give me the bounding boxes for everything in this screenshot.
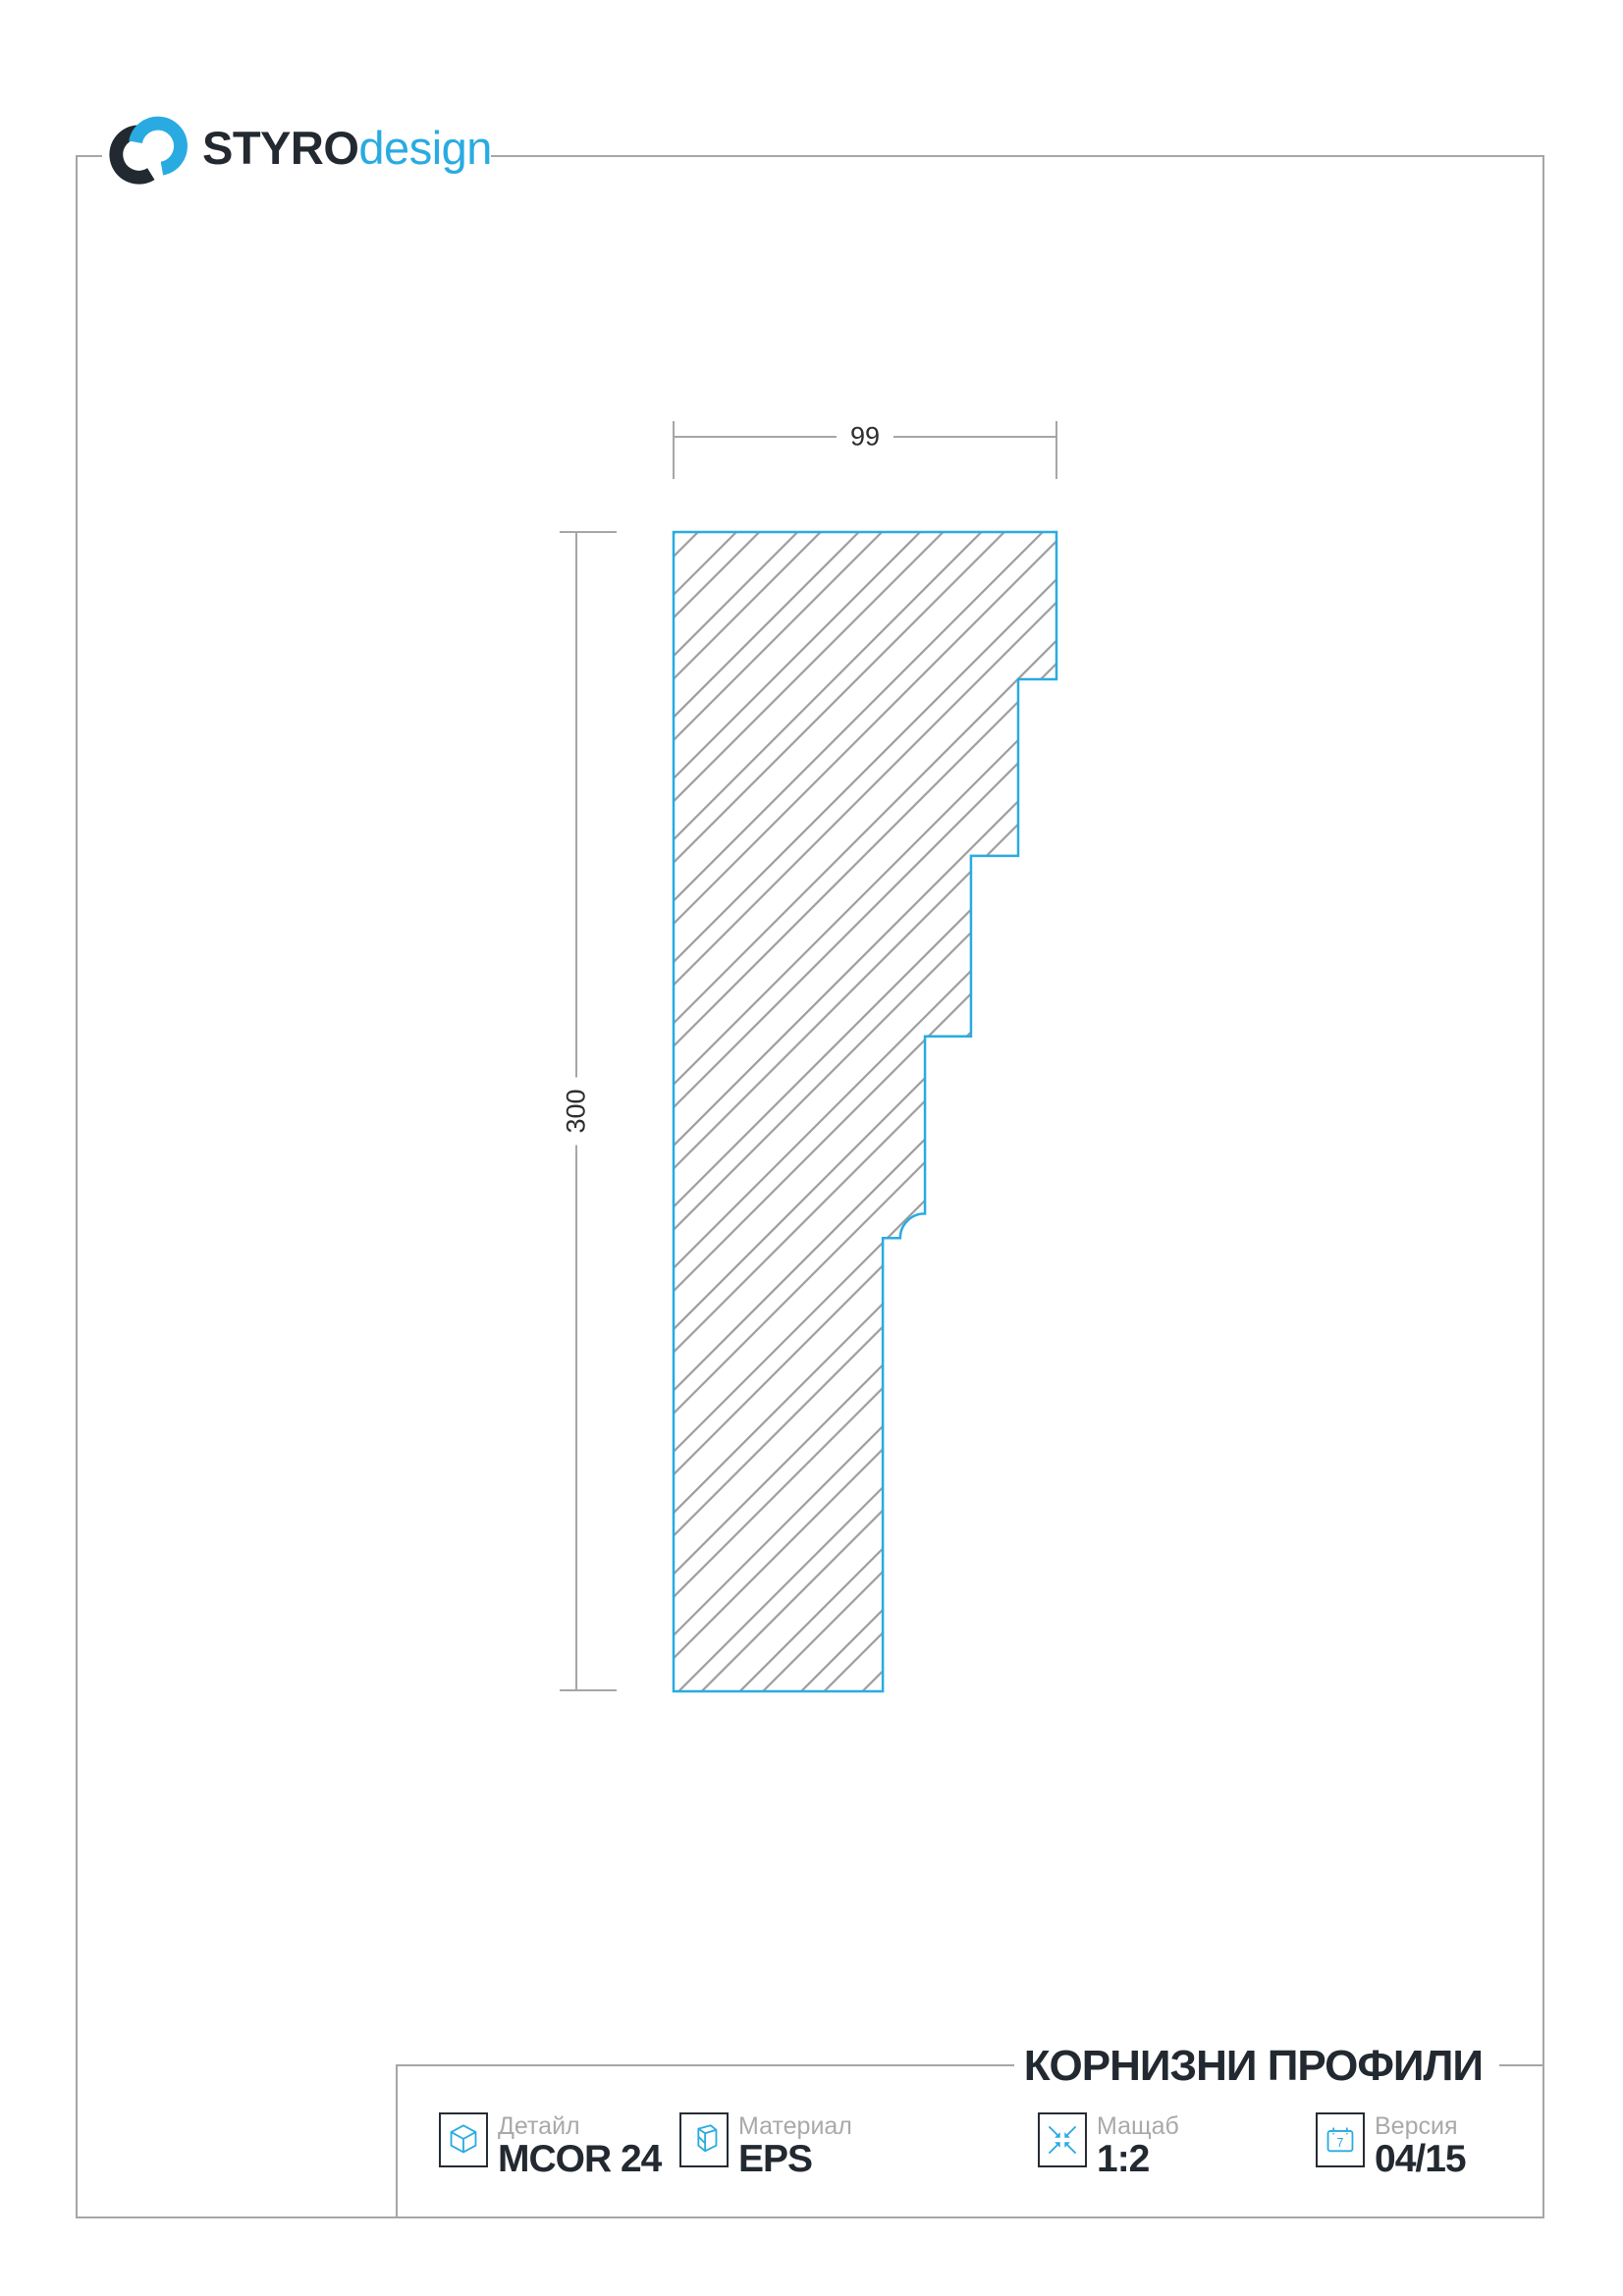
field-label: Материал <box>738 2112 852 2141</box>
dimension-tick-bottom <box>560 1689 617 1691</box>
frame-bottom-border <box>76 2216 1544 2218</box>
field-scale: Мащаб 1:2 <box>1038 2112 1273 2171</box>
field-label: Детайл <box>498 2112 580 2141</box>
field-value: MCOR 24 <box>498 2138 661 2181</box>
field-version: 7 Версия 04/15 <box>1316 2112 1551 2171</box>
brand-name-light: design <box>358 121 492 175</box>
width-dimension-label: 99 <box>837 422 893 453</box>
field-value: 04/15 <box>1375 2138 1466 2181</box>
titleblock-top-right-segment <box>1499 2064 1544 2066</box>
calendar-day-glyph: 7 <box>1337 2136 1344 2150</box>
dimension-tick-right <box>1055 421 1057 479</box>
dimension-tick-left <box>673 421 675 479</box>
profile-outline <box>674 532 1056 1691</box>
field-label: Мащаб <box>1097 2112 1179 2141</box>
field-value: EPS <box>738 2138 812 2181</box>
cube-icon <box>447 2123 480 2157</box>
scale-arrows-icon <box>1046 2123 1079 2157</box>
frame-top-left-segment <box>76 155 102 157</box>
field-material: Материал EPS <box>679 2112 915 2171</box>
scale-icon-box <box>1038 2112 1087 2167</box>
field-value: 1:2 <box>1097 2138 1149 2181</box>
brand-name-bold: STYRO <box>202 121 358 175</box>
profile-cross-section <box>674 532 1056 1691</box>
field-detail: Детайл MCOR 24 <box>439 2112 675 2171</box>
titleblock-top-left-segment <box>396 2064 1095 2066</box>
detail-icon-box <box>439 2112 488 2167</box>
material-icon-box <box>679 2112 729 2167</box>
dimension-tick-top <box>560 531 617 533</box>
version-icon-box: 7 <box>1316 2112 1365 2167</box>
field-label: Версия <box>1375 2112 1458 2141</box>
frame-left-border <box>76 155 78 2218</box>
height-dimension-label: 300 <box>562 1077 592 1145</box>
frame-top-right-segment <box>491 155 1544 157</box>
section-title: КОРНИЗНИ ПРОФИЛИ <box>1014 2042 1492 2091</box>
calendar-icon: 7 <box>1324 2123 1357 2157</box>
swirl-s-icon <box>106 114 190 188</box>
brand-text: STYROdesign <box>202 116 492 179</box>
material-block-icon <box>687 2123 721 2157</box>
page: STYROdesign 99 300 КОРНИЗНИ ПРОФИЛИ <box>0 0 1623 2296</box>
frame-right-border <box>1542 155 1544 2218</box>
titleblock-left-border <box>396 2064 398 2217</box>
